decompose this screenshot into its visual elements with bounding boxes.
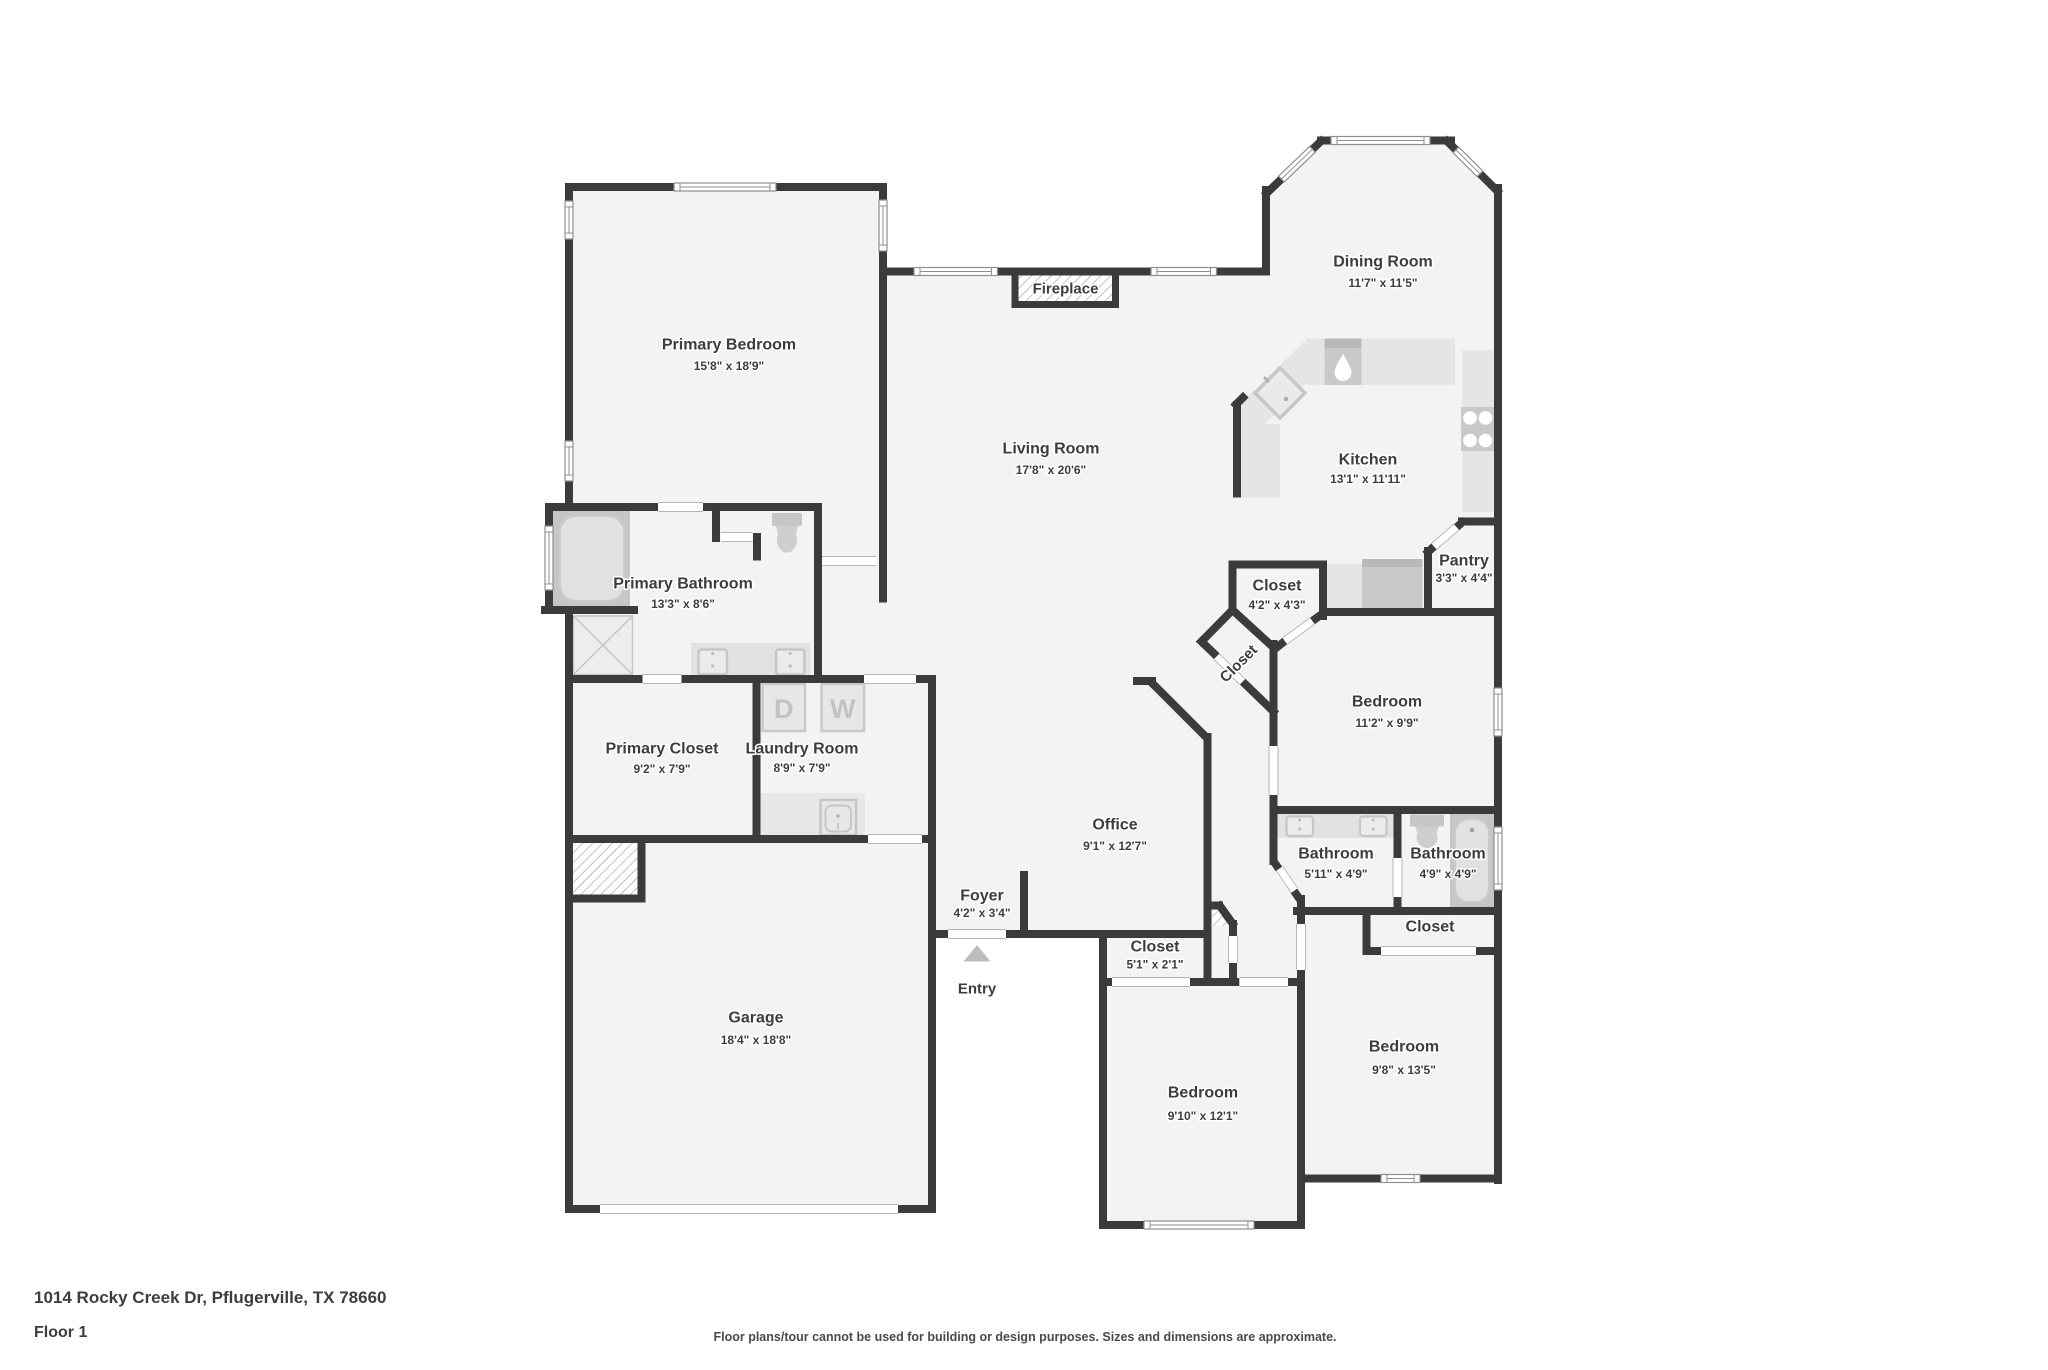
svg-text:4'2" x 3'4": 4'2" x 3'4" xyxy=(953,906,1010,920)
svg-text:Floor plans/tour cannot be use: Floor plans/tour cannot be used for buil… xyxy=(713,1330,1336,1344)
svg-text:Kitchen: Kitchen xyxy=(1339,452,1398,469)
svg-text:9'10" x 12'1": 9'10" x 12'1" xyxy=(1168,1109,1238,1123)
svg-text:W: W xyxy=(830,694,856,724)
svg-text:Laundry Room: Laundry Room xyxy=(746,741,859,758)
svg-text:9'1" x 12'7": 9'1" x 12'7" xyxy=(1083,839,1147,853)
svg-text:15'8" x 18'9": 15'8" x 18'9" xyxy=(694,359,764,373)
svg-text:Floor 1: Floor 1 xyxy=(34,1324,87,1341)
svg-text:5'1" x 2'1": 5'1" x 2'1" xyxy=(1126,958,1183,972)
svg-text:Bedroom: Bedroom xyxy=(1168,1085,1238,1102)
svg-text:Garage: Garage xyxy=(728,1010,783,1027)
svg-text:Bathroom: Bathroom xyxy=(1298,846,1374,863)
svg-text:Pantry: Pantry xyxy=(1439,553,1489,570)
svg-text:4'9" x 4'9": 4'9" x 4'9" xyxy=(1419,867,1476,881)
svg-text:Bathroom: Bathroom xyxy=(1410,846,1486,863)
svg-text:4'2" x 4'3": 4'2" x 4'3" xyxy=(1248,598,1305,612)
svg-text:9'2" x 7'9": 9'2" x 7'9" xyxy=(633,762,690,776)
svg-text:Primary Bedroom: Primary Bedroom xyxy=(662,337,796,354)
svg-text:Entry: Entry xyxy=(958,980,997,997)
svg-text:Fireplace: Fireplace xyxy=(1033,280,1099,297)
svg-text:18'4" x 18'8": 18'4" x 18'8" xyxy=(721,1033,791,1047)
svg-text:Closet: Closet xyxy=(1406,919,1456,936)
svg-text:Primary Closet: Primary Closet xyxy=(606,741,720,758)
svg-text:Bedroom: Bedroom xyxy=(1369,1039,1439,1056)
svg-text:Living Room: Living Room xyxy=(1003,441,1100,458)
svg-text:Office: Office xyxy=(1092,817,1137,834)
svg-text:Foyer: Foyer xyxy=(960,888,1004,905)
svg-text:11'7" x 11'5": 11'7" x 11'5" xyxy=(1348,276,1417,290)
svg-text:17'8" x 20'6": 17'8" x 20'6" xyxy=(1016,463,1086,477)
svg-text:Primary Bathroom: Primary Bathroom xyxy=(613,576,753,593)
svg-text:Bedroom: Bedroom xyxy=(1352,694,1422,711)
svg-text:13'3" x 8'6": 13'3" x 8'6" xyxy=(651,597,715,611)
svg-text:Closet: Closet xyxy=(1253,578,1303,595)
svg-text:D: D xyxy=(774,694,794,724)
svg-text:9'8" x 13'5": 9'8" x 13'5" xyxy=(1372,1063,1436,1077)
svg-text:3'3" x 4'4": 3'3" x 4'4" xyxy=(1435,571,1492,585)
svg-text:1014 Rocky Creek Dr, Pflugervi: 1014 Rocky Creek Dr, Pflugerville, TX 78… xyxy=(34,1288,386,1307)
svg-text:11'2" x 9'9": 11'2" x 9'9" xyxy=(1355,716,1418,730)
svg-text:Closet: Closet xyxy=(1131,939,1181,956)
svg-text:13'1" x 11'11": 13'1" x 11'11" xyxy=(1330,472,1406,486)
svg-text:8'9" x 7'9": 8'9" x 7'9" xyxy=(773,761,830,775)
svg-text:Dining Room: Dining Room xyxy=(1333,254,1433,271)
svg-text:5'11" x 4'9": 5'11" x 4'9" xyxy=(1304,867,1367,881)
